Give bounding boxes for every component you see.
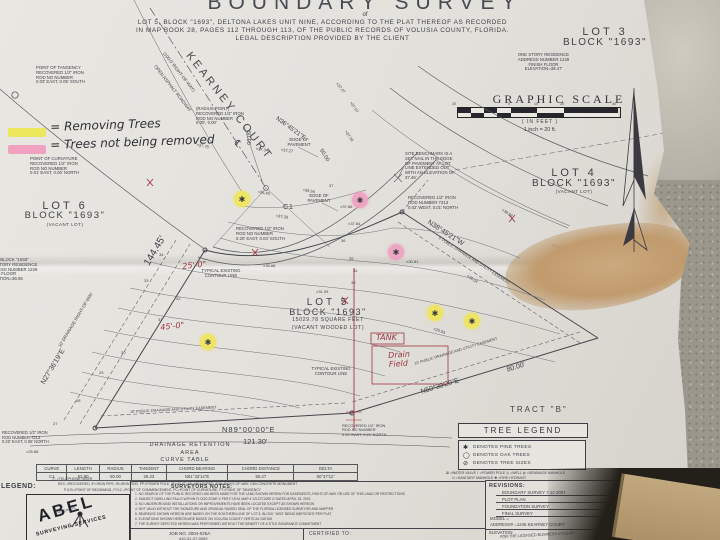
row-curve-east-1 bbox=[390, 88, 608, 206]
tree-legend-items: ✱ DENOTES PINE TREES ◯ DENOTES OAK TREES… bbox=[458, 440, 586, 470]
tree-legend-title: TREE LEGEND bbox=[458, 423, 588, 438]
certified-to-label: CERTIFIED TO: bbox=[309, 532, 351, 538]
survey-photo: BOUNDARY SURVEY of LOT 5, BLOCK "1693", … bbox=[0, 0, 720, 540]
notes-footer-row: JOB NO. 2004-025A #10-31-07-0050 CERTIFI… bbox=[131, 528, 485, 540]
lot5-boundary bbox=[12, 92, 598, 430]
north-arrow-icon bbox=[623, 88, 647, 252]
pine-tree-marker-yellow-2: ✱ bbox=[200, 334, 216, 350]
tree-size-symbol: ⊘ bbox=[463, 460, 473, 467]
row-curve-east-2 bbox=[418, 66, 648, 176]
tree-legend-label: DENOTES OAK TREES bbox=[473, 453, 530, 458]
easement-lines bbox=[64, 180, 580, 424]
survey-linework bbox=[0, 0, 720, 540]
retention-area-lines bbox=[30, 432, 452, 447]
tree-legend-row: ⊘ DENOTES TREE SIZES bbox=[463, 459, 581, 467]
tree-legend-row: ◯ DENOTES OAK TREES bbox=[463, 451, 581, 459]
boundary-southeast bbox=[352, 338, 598, 413]
surveyor-note: 7. THE SURVEY DEPICTED HEREIN WAS PERFOR… bbox=[135, 523, 480, 527]
company-logo-box: ABEL DELTONA, FL. SURVEYING SERVICES bbox=[26, 494, 130, 540]
tree-marker-pink-2: ✱ bbox=[388, 244, 404, 260]
street-group bbox=[0, 0, 665, 265]
tree-legend: TREE LEGEND ✱ DENOTES PINE TREES ◯ DENOT… bbox=[458, 423, 588, 470]
boundary-south bbox=[95, 413, 352, 428]
oak-tree-symbol: ◯ bbox=[463, 452, 473, 459]
surveyors-notes-box: SURVEYORS NOTES: 1. NO SEARCH OF THE PUB… bbox=[130, 481, 486, 540]
pine-tree-marker-yellow-4: ✱ bbox=[464, 313, 480, 329]
tree-legend-label: DENOTES TREE SIZES bbox=[473, 461, 531, 466]
tree-legend-label: DENOTES PINE TREES bbox=[473, 445, 531, 450]
boundary-front-curve-c1 bbox=[205, 212, 402, 256]
pine-tree-marker-yellow-1: ✱ bbox=[234, 191, 250, 207]
pine-tree-symbol: ✱ bbox=[463, 444, 473, 451]
street-centerline bbox=[150, 8, 266, 188]
red-annotation-lines bbox=[147, 179, 515, 430]
pine-tree-marker-yellow-3: ✱ bbox=[427, 305, 443, 321]
cell-divider bbox=[303, 529, 304, 540]
row-edge-west bbox=[0, 84, 203, 248]
tree-legend-row: ✱ DENOTES PINE TREES bbox=[463, 443, 581, 451]
revisions-title: REVISIONS: bbox=[489, 483, 525, 489]
surveyors-notes-title: SURVEYORS NOTES: bbox=[171, 485, 233, 491]
survey-paper: BOUNDARY SURVEY of LOT 5, BLOCK "1693", … bbox=[0, 0, 720, 540]
tree-marker-pink-1: ✱ bbox=[352, 192, 368, 208]
contour-lines bbox=[70, 190, 560, 418]
